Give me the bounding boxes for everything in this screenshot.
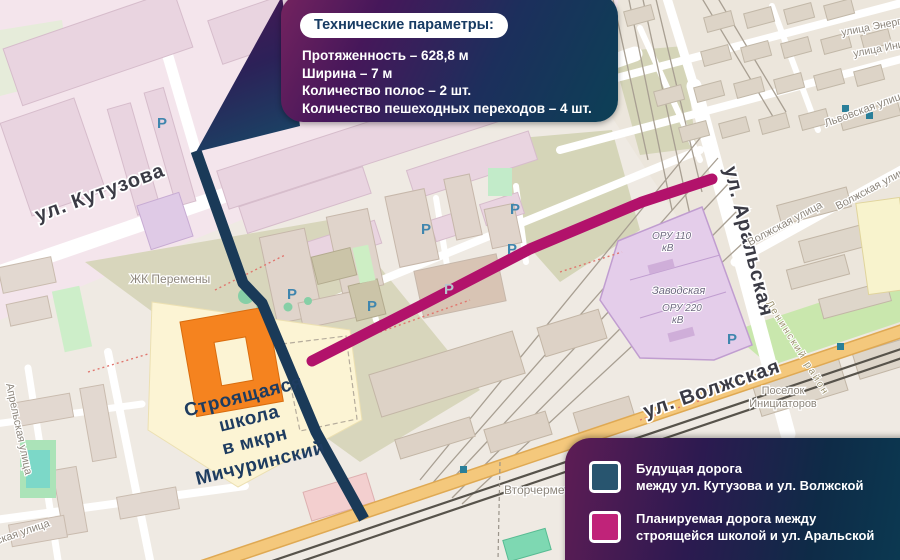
legend-panel: Будущая дорога между ул. Кутузова и ул. … <box>565 438 900 560</box>
param-crosswalks: Количество пешеходных переходов – 4 шт. <box>302 100 618 118</box>
parking-icon: P <box>510 201 520 218</box>
area-label-poselok: Инициаторов <box>749 398 817 410</box>
substation-label-oru220: кВ <box>672 315 684 326</box>
legend-planned-road-line1: Планируемая дорога между <box>636 510 874 527</box>
parking-icon: P <box>157 115 167 132</box>
param-length: Протяженность – 628,8 м <box>302 47 618 65</box>
legend-future-road-line1: Будущая дорога <box>636 460 863 477</box>
parking-icon: P <box>287 286 297 303</box>
infographic-root: P P P P P P P P ул. Кутузова ул. Аральск… <box>0 0 900 560</box>
legend-swatch-magenta <box>589 511 621 543</box>
parking-icon: P <box>444 281 454 298</box>
parking-icon: P <box>421 221 431 238</box>
area-label-zhk-peremeny: ЖК Перемены <box>130 272 210 286</box>
legend-future-road-line2: между ул. Кутузова и ул. Волжской <box>636 477 863 494</box>
area-label-poselok: Поселок <box>762 385 805 397</box>
legend-swatch-navy <box>589 461 621 493</box>
tech-params-lines: Протяженность – 628,8 м Ширина – 7 м Кол… <box>302 47 618 117</box>
tech-params-title: Технические параметры: <box>300 13 508 38</box>
param-lanes: Количество полос – 2 шт. <box>302 82 618 100</box>
parking-icon: P <box>727 331 737 348</box>
param-width: Ширина – 7 м <box>302 65 618 83</box>
legend-planned-road-line2: строящейся школой и ул. Аральской <box>636 527 874 544</box>
substation-label-zavodskaya: Заводская <box>652 285 705 297</box>
tech-params-panel: Технические параметры: Протяженность – 6… <box>281 0 618 122</box>
legend-item-future-road: Будущая дорога между ул. Кутузова и ул. … <box>589 438 900 494</box>
substation-label-oru110: кВ <box>662 243 674 254</box>
parking-icon: P <box>507 241 517 258</box>
substation-label-oru110: ОРУ 110 <box>652 231 692 242</box>
legend-item-planned-road: Планируемая дорога между строящейся школ… <box>589 494 900 544</box>
parking-icon: P <box>367 298 377 315</box>
area-label-vtorchermet: Вторчермет <box>504 483 570 497</box>
substation-label-oru220: ОРУ 220 <box>662 303 702 314</box>
